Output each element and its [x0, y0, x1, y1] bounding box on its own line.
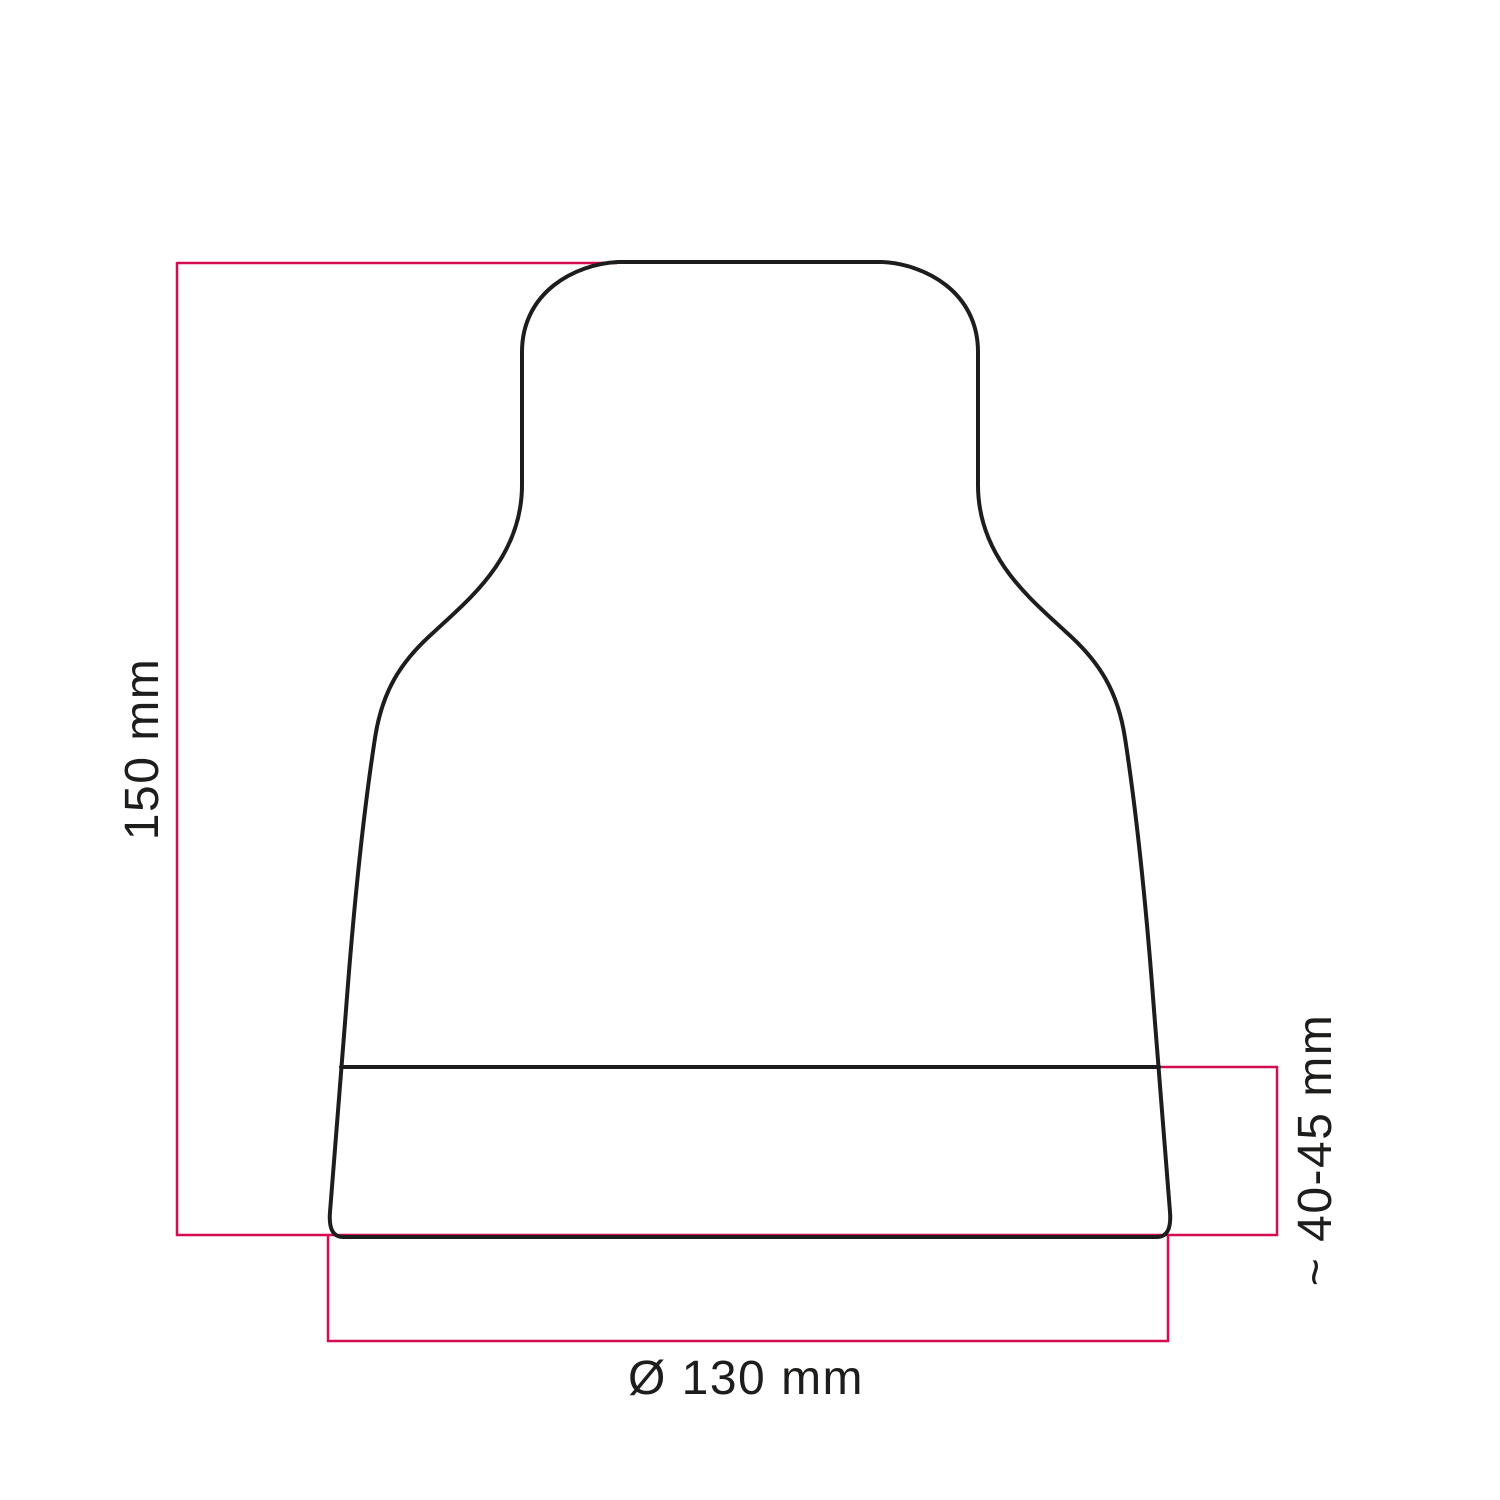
- lampshade-outline-group: [330, 262, 1170, 1237]
- dimension-labels: 150 mm ~ 40-45 mm Ø 130 mm: [116, 658, 1342, 1405]
- diagram-svg: 150 mm ~ 40-45 mm Ø 130 mm: [0, 0, 1500, 1500]
- collar-height-label: ~ 40-45 mm: [1289, 1014, 1342, 1286]
- diameter-label: Ø 130 mm: [628, 1352, 864, 1405]
- lampshade-outline: [330, 262, 1170, 1237]
- height-label: 150 mm: [116, 658, 169, 840]
- lampshade-dimension-diagram: 150 mm ~ 40-45 mm Ø 130 mm: [0, 0, 1500, 1500]
- dimension-lines: [176, 262, 1278, 1342]
